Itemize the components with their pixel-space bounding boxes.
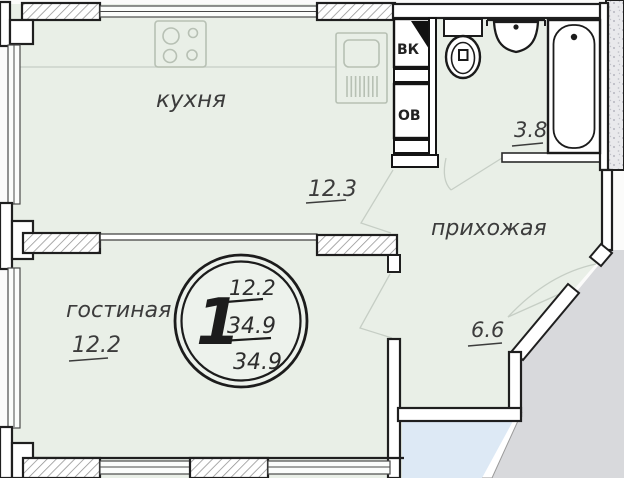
hatched-wall [22, 3, 100, 20]
wall-hall-corner [509, 352, 521, 416]
vk-shaft-label: ВК [397, 42, 420, 58]
living-label: гостиная [66, 298, 171, 323]
light-partition [100, 234, 317, 240]
wall-hall-right [602, 170, 612, 250]
kitchen-area: 12.3 [308, 177, 357, 202]
hatched-wall [190, 458, 268, 478]
ov-shaft-label: ОВ [398, 108, 421, 124]
overall-area-value: 34.9 [233, 350, 282, 375]
pilaster [10, 20, 33, 44]
bathroom-area: 3.8 [514, 118, 547, 142]
door-jamb [388, 255, 400, 272]
wall-shaft-bottom [392, 155, 438, 167]
wall-top-bath [393, 4, 608, 18]
hatched-wall [317, 235, 397, 255]
hallway-area: 6.6 [471, 318, 504, 342]
kitchen-label: кухня [156, 87, 226, 113]
hatched-wall [23, 233, 100, 253]
hatched-wall [23, 458, 100, 478]
shaft-divider [394, 69, 431, 82]
info-stamp: 1 12.2 34.9 34.9 [175, 255, 307, 387]
wall-bath-right [600, 3, 608, 170]
bathtub-icon [548, 20, 600, 153]
pilaster [0, 203, 12, 269]
living-area-value: 12.2 [229, 276, 276, 300]
toilet-icon [444, 19, 482, 78]
pilaster [0, 2, 10, 46]
wall-hall-bottom [398, 408, 521, 421]
hallway-label: прихожая [431, 216, 547, 241]
total-area-value: 34.9 [227, 314, 276, 339]
shaft-divider [394, 140, 431, 153]
wall-bath-left [429, 18, 436, 155]
faucet-dot [513, 24, 518, 29]
living-area: 12.2 [72, 333, 121, 358]
wall-bath-bottom [502, 153, 608, 162]
pilaster [0, 427, 12, 478]
floor-plan: кухня 12.3 ВК ОВ 3.8 прихожая 6.6 гостин… [0, 0, 624, 478]
hatched-wall [317, 3, 395, 20]
floor-plan-canvas: кухня 12.3 ВК ОВ 3.8 прихожая 6.6 гостин… [0, 0, 624, 478]
faucet-dot [571, 34, 577, 40]
